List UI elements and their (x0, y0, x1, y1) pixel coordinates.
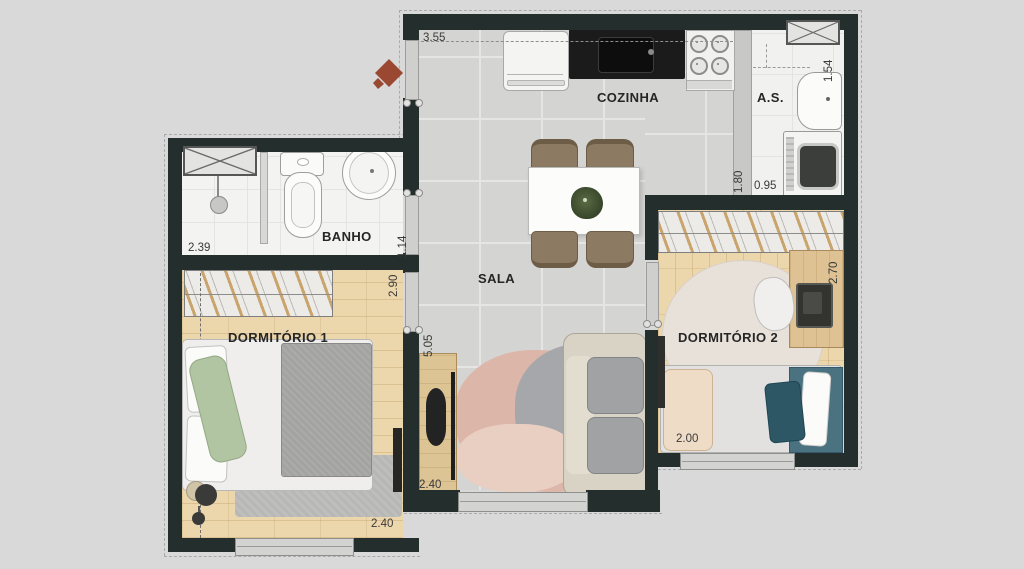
kitchen-dimension-line (421, 41, 733, 42)
stove-burner-icon (690, 57, 708, 75)
dim-banho-width: 2.39 (188, 242, 210, 254)
cabinet-projection-dash (753, 67, 810, 68)
bedroom2-door-leaf (658, 336, 665, 408)
table-plant (583, 198, 587, 202)
sofa-cushion (587, 417, 644, 474)
refrigerator (507, 74, 563, 75)
bed-blanket (281, 343, 372, 477)
wall (403, 490, 460, 512)
bed-pillow-teal (764, 380, 806, 443)
stove-burner-icon (711, 35, 729, 53)
bedroom1-door (405, 272, 419, 332)
door-pivot-icon (403, 189, 411, 197)
decor-vase (426, 388, 446, 446)
wall (844, 14, 858, 467)
dim-sala-width: 2.40 (419, 479, 441, 491)
door-pivot-icon (643, 320, 651, 328)
window (458, 492, 588, 512)
toilet (297, 158, 309, 166)
wall (645, 195, 858, 210)
contour-dash (399, 10, 861, 11)
toilet (291, 182, 315, 228)
wall (403, 330, 419, 512)
floor-plan: COZINHA A.S. BANHO SALA DORMITÓRIO 1 DOR… (0, 0, 1024, 569)
wall (403, 14, 419, 40)
entry-door (405, 40, 419, 100)
bedroom1-tv (393, 428, 402, 492)
window (680, 453, 795, 470)
dim-dormitorio2-depth: 2.70 (828, 262, 840, 284)
wall (645, 453, 680, 467)
shower-head-icon (210, 196, 228, 214)
living-rug (457, 424, 577, 492)
washing-machine (786, 137, 794, 191)
dim-as-width: 1.54 (823, 60, 835, 82)
room-label-as: A.S. (757, 90, 784, 105)
kitchen-sink (598, 37, 654, 73)
dim-dormitorio1-width: 2.40 (371, 518, 393, 530)
room-label-cozinha: COZINHA (597, 90, 659, 105)
door-pivot-icon (403, 326, 411, 334)
tv (451, 372, 455, 480)
dim-as-depth: 1.80 (733, 171, 745, 193)
faucet-icon (370, 169, 374, 173)
wall (352, 538, 419, 552)
room-label-banho: BANHO (322, 229, 372, 244)
door-pivot-icon (415, 99, 423, 107)
washing-machine-door (797, 143, 839, 190)
stove-burner-icon (690, 35, 708, 53)
dim-cozinha-width: 3.55 (423, 32, 445, 44)
sofa-cushion (587, 357, 644, 414)
room-label-dormitorio1: DORMITÓRIO 1 (228, 330, 328, 345)
door-pivot-icon (415, 326, 423, 334)
contour-dash (861, 10, 862, 469)
shower-divider (260, 152, 268, 244)
stove (687, 80, 732, 89)
bedroom1-bed (182, 339, 373, 491)
dining-chair (586, 231, 634, 268)
table-plant (571, 187, 603, 219)
dim-banho-depth: 1.14 (397, 236, 409, 258)
dining-chair (531, 231, 578, 268)
entrance-arrow-icon (372, 56, 406, 90)
floor-plant (192, 512, 205, 525)
dim-sala-length: 5.05 (423, 335, 435, 357)
faucet-icon (826, 97, 830, 101)
room-label-sala: SALA (478, 271, 515, 286)
floor-plant (195, 484, 217, 506)
door-pivot-icon (403, 99, 411, 107)
faucet-icon (648, 49, 654, 55)
contour-dash (164, 134, 165, 556)
dim-dormitorio2-width: 2.00 (676, 433, 698, 445)
stove-burner-icon (711, 57, 729, 75)
high-window-icon (183, 146, 257, 176)
dim-dormitorio1-depth: 2.90 (388, 275, 400, 297)
bedroom2-door (646, 262, 659, 326)
door-pivot-icon (415, 189, 423, 197)
wall (645, 330, 658, 512)
refrigerator (507, 80, 565, 86)
window (235, 538, 354, 556)
cabinet-projection-dash (766, 44, 767, 68)
contour-dash (399, 513, 662, 514)
room-label-dormitorio2: DORMITÓRIO 2 (678, 330, 778, 345)
wall (168, 538, 235, 552)
wall (168, 138, 182, 552)
washbasin (349, 152, 389, 194)
dim-as-inner-width: 0.95 (754, 180, 776, 192)
wall (182, 255, 419, 270)
door-pivot-icon (654, 320, 662, 328)
laundry-tank (797, 72, 842, 130)
contour-dash (164, 556, 420, 557)
contour-dash (164, 134, 420, 135)
bedroom2-wardrobe (658, 211, 844, 253)
wall (793, 453, 858, 467)
wall (645, 195, 658, 260)
desk-monitor (803, 292, 822, 314)
bedroom1-wardrobe (184, 270, 333, 317)
high-window-icon (786, 20, 840, 45)
